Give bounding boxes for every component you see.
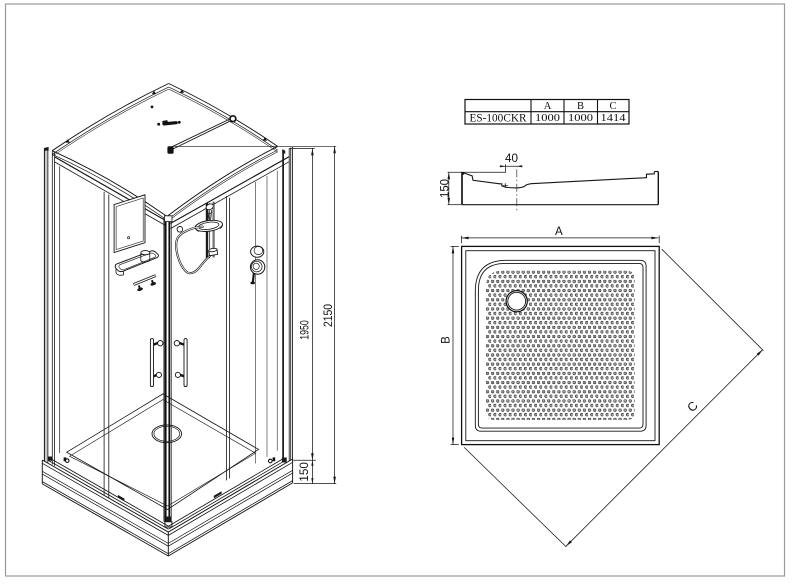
svg-text:1414: 1414 [601,112,627,124]
svg-text:1000: 1000 [535,112,561,124]
svg-text:1000: 1000 [568,112,594,124]
svg-text:B: B [577,101,584,112]
svg-text:40: 40 [505,153,518,165]
svg-text:2150: 2150 [323,304,335,327]
svg-text:ES-100CKR: ES-100CKR [470,110,527,124]
svg-text:C: C [609,101,616,112]
svg-text:A: A [555,226,563,238]
svg-text:A: A [544,101,552,112]
svg-text:B: B [441,336,453,344]
svg-text:150: 150 [299,462,311,482]
svg-text:150: 150 [440,179,452,198]
svg-text:1950: 1950 [300,320,312,340]
